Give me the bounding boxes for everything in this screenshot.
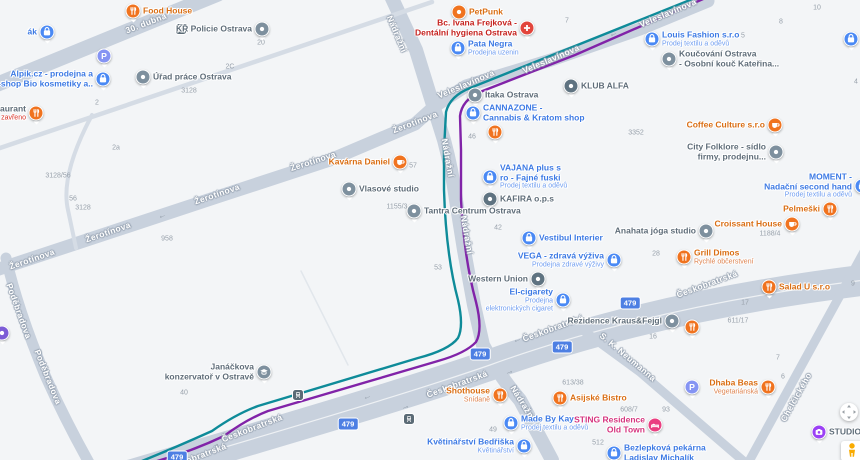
grill-dimos-subtitle: Rychlé občerstvení — [694, 258, 754, 266]
bezlepkova-pekarna-name: Ladislav Michalík — [624, 453, 706, 460]
address-number: 608/7 — [620, 407, 638, 414]
studio-g-name: STUDIO G — [829, 427, 860, 437]
frejkova-dentalni-hygiena-icon[interactable] — [520, 21, 535, 36]
kafira-icon[interactable] — [483, 192, 498, 207]
moment-second-hand-subtitle: Prodej textilu a oděvů — [764, 192, 852, 200]
janackova-konzervator-name: konzervatoř v Ostravě — [165, 372, 254, 382]
food-icon-unlabeled-2-icon[interactable] — [685, 320, 700, 335]
route-479-badge: 479 — [621, 298, 640, 309]
address-number: 3128/56 — [45, 173, 70, 180]
vega-zdrava-vyziva-subtitle: Prodejna zdravé výživy — [518, 261, 604, 269]
address-number: 42 — [494, 225, 502, 232]
louis-fashion-subtitle: Prodej textilu a oděvů — [662, 40, 739, 48]
dhaba-beas-name: Dhaba Beas — [709, 378, 758, 388]
koucovani-ostrava-label[interactable]: Koučování Ostrava- Osobní kouč Kateřina.… — [679, 50, 779, 69]
vajana-plus-icon[interactable] — [483, 170, 498, 185]
address-number: 46 — [468, 134, 476, 141]
croissant-house-label[interactable]: Croissant House — [714, 219, 782, 229]
parking-south-icon[interactable]: P — [685, 380, 700, 395]
address-number: 20 — [257, 40, 265, 47]
address-number: 613/38 — [562, 380, 583, 387]
petpunk-label[interactable]: PetPunk — [469, 7, 503, 17]
road-ceskobratrska — [30, 278, 860, 460]
moment-second-hand-name: Nadační second hand — [764, 182, 852, 192]
vajana-plus-label[interactable]: VAJANA plus sro - Fajné fuskiProdej text… — [500, 164, 567, 191]
shothouse-icon[interactable] — [493, 388, 508, 403]
anahata-joga-label[interactable]: Anahata jóga studio — [615, 226, 696, 236]
road-parcel-line — [301, 271, 348, 365]
svg-text:P: P — [689, 382, 695, 392]
address-number: 16 — [649, 334, 657, 341]
pelmeski-name: Pelmeški — [783, 204, 820, 214]
address-number: 17 — [741, 300, 749, 307]
address-number: 1155/3 — [387, 204, 408, 211]
pata-negra-name: Pata Negra — [468, 39, 519, 49]
city-folklore-icon[interactable] — [769, 145, 784, 160]
coffee-culture-name: Coffee Culture s.r.o — [687, 120, 765, 130]
itaka-ostrava-label[interactable]: Itaka Ostrava — [485, 90, 538, 100]
svg-text:P: P — [101, 51, 107, 61]
address-number: 2 — [95, 100, 99, 107]
kavarna-daniel-name: Kavárna Daniel — [329, 157, 390, 167]
city-folklore-name: firmy, prodejnu... — [687, 152, 766, 162]
address-number: 53 — [434, 265, 442, 272]
vlasove-studio-name: Vlasové studio — [359, 184, 419, 194]
anahata-joga-name: Anahata jóga studio — [615, 226, 696, 236]
violet-edge-icon-icon[interactable] — [0, 326, 10, 341]
el-cigarety-label[interactable]: El-cigaretyProdejnaelektronických cigare… — [486, 287, 553, 313]
tram-stop-icon[interactable] — [404, 414, 414, 424]
address-number: 56 — [69, 196, 77, 203]
address-number: 9 — [851, 281, 855, 288]
salad-u-label[interactable]: Salad U s.r.o — [779, 282, 830, 292]
road-podebradova — [6, 258, 92, 460]
route-479-badge: 479 — [471, 349, 490, 360]
western-union-icon[interactable] — [531, 272, 546, 287]
frejkova-dentalni-hygiena-label[interactable]: Bc. Ivana Frejková -Dentální hygiena Ost… — [415, 19, 517, 38]
unknown-ak-label[interactable]: ák — [28, 27, 37, 37]
janackova-konzervator-icon[interactable] — [257, 365, 272, 380]
unknown-ak-name: ák — [28, 27, 37, 37]
coffee-culture-label[interactable]: Coffee Culture s.r.o — [687, 120, 765, 130]
vestibul-interier-label[interactable]: Vestibul Interier — [539, 233, 603, 243]
pata-negra-label[interactable]: Pata NegraProdejna uzenin — [468, 39, 519, 57]
route-479-badge: 479 — [339, 419, 358, 430]
made-by-kaya-li-icon[interactable] — [504, 416, 519, 431]
klub-alfa-label[interactable]: KLUB ALFA — [581, 81, 629, 91]
food-house-name: Food House — [143, 6, 192, 16]
asijske-bistro-icon[interactable] — [553, 391, 568, 406]
address-number: 611/17 — [728, 318, 749, 325]
el-cigarety-icon[interactable] — [556, 293, 571, 308]
kvetinarstvi-bedriska-icon[interactable] — [517, 439, 532, 454]
address-number: 2C — [226, 64, 235, 71]
kavarna-daniel-label[interactable]: Kavárna Daniel — [329, 157, 390, 167]
kr-policie-ostrava-icon[interactable] — [255, 22, 270, 37]
frejkova-dentalni-hygiena-name: Dentální hygiena Ostrava — [415, 28, 517, 38]
address-number: 10 — [813, 5, 821, 12]
address-number: 4 — [854, 79, 858, 86]
address-number: 5 — [741, 33, 745, 40]
pata-negra-icon[interactable] — [451, 41, 466, 56]
shothouse-label[interactable]: ShothouseSnídaně — [446, 386, 490, 404]
shothouse-name: Shothouse — [446, 386, 490, 396]
address-number: 1188/4 — [760, 231, 781, 238]
address-number: 3352 — [628, 130, 644, 137]
koucovani-ostrava-icon[interactable] — [662, 52, 677, 67]
address-number: 6 — [781, 374, 785, 381]
louis-fashion-label[interactable]: Louis Fashion s.r.oProdej textilu a oděv… — [662, 30, 739, 48]
map-canvas[interactable]: 30. dubnaVeleslavínovaVeleslavínovaVeles… — [0, 0, 860, 460]
urad-prace-ostrava-icon[interactable] — [136, 70, 151, 85]
anahata-joga-icon[interactable] — [699, 224, 714, 239]
cannazone-name: Cannabis & Kratom shop — [483, 113, 585, 123]
address-number: 8 — [779, 19, 783, 26]
restaurant-closed-icon[interactable] — [29, 106, 44, 121]
croissant-house-icon[interactable] — [785, 217, 800, 232]
grill-dimos-icon[interactable] — [677, 250, 692, 265]
urad-prace-ostrava-name: Úřad práce Ostrava — [153, 72, 231, 82]
asijske-bistro-label[interactable]: Asijské Bistro — [570, 393, 627, 403]
rezidence-kraus-fejgl-label[interactable]: Rezidence Kraus&Fejgl — [568, 316, 662, 326]
kafira-name: KAFIRA o.p.s — [500, 194, 554, 204]
kvetinarstvi-bedriska-label[interactable]: Květinářství BedřiškaKvětinářství — [427, 437, 514, 455]
itaka-ostrava-name: Itaka Ostrava — [485, 90, 538, 100]
shop-icon-right-edge-icon[interactable] — [844, 32, 859, 47]
el-cigarety-subtitle: Prodejna — [486, 297, 553, 305]
croissant-house-name: Croissant House — [714, 219, 782, 229]
route-479-badge: 479 — [553, 342, 572, 353]
koucovani-ostrava-name: - Osobní kouč Kateřina... — [679, 59, 779, 69]
asijske-bistro-name: Asijské Bistro — [570, 393, 627, 403]
parking-north-icon[interactable]: P — [97, 49, 112, 64]
vega-zdrava-vyziva-icon[interactable] — [607, 253, 622, 268]
louis-fashion-icon[interactable] — [645, 32, 660, 47]
kr-policie-ostrava-label[interactable]: KŘ Policie Ostrava — [176, 24, 252, 34]
vestibul-interier-icon[interactable] — [522, 231, 537, 246]
alpik-name: e-shop Bio kosmetiky a.. — [0, 79, 93, 89]
dhaba-beas-label[interactable]: Dhaba BeasVegetariánská — [709, 378, 758, 396]
kvetinarstvi-bedriska-name: Květinářství Bedřiška — [427, 437, 514, 447]
kafira-label[interactable]: KAFIRA o.p.s — [500, 194, 554, 204]
pan-control-icon[interactable] — [840, 403, 858, 421]
food-house-label[interactable]: Food House — [143, 6, 192, 16]
road-thin-street-west — [66, 115, 92, 248]
vega-zdrava-vyziva-name: VEGA - zdravá výživa — [518, 251, 604, 261]
address-number: 7 — [776, 355, 780, 362]
address-number: 93 — [662, 407, 670, 414]
sting-residence-icon[interactable] — [648, 418, 663, 433]
address-number: 512 — [592, 440, 604, 447]
rezidence-kraus-fejgl-icon[interactable] — [665, 314, 680, 329]
address-number: 3128 — [75, 205, 91, 212]
shothouse-subtitle: Snídaně — [446, 396, 490, 404]
western-union-name: Western Union — [468, 274, 528, 284]
cannazone-label[interactable]: CANNAZONE -Cannabis & Kratom shop — [483, 104, 585, 123]
vajana-plus-name: ro - Fajné fuski — [500, 173, 567, 183]
alpik-label[interactable]: Alpik.cz - prodejna ae-shop Bio kosmetik… — [0, 70, 93, 89]
coffee-culture-icon[interactable] — [768, 118, 783, 133]
janackova-konzervator-label[interactable]: Janáčkovakonzervatoř v Ostravě — [165, 363, 254, 382]
pelmeski-label[interactable]: Pelmeški — [783, 204, 820, 214]
louis-fashion-name: Louis Fashion s.r.o — [662, 30, 739, 40]
salad-u-name: Salad U s.r.o — [779, 282, 830, 292]
unknown-ak-icon[interactable] — [40, 25, 55, 40]
food-icon-unlabeled-1-icon[interactable] — [488, 125, 503, 140]
bezlepkova-pekarna-icon[interactable] — [607, 446, 622, 460]
kr-policie-ostrava-name: KŘ Policie Ostrava — [176, 24, 252, 34]
city-folklore-label[interactable]: City Folklore - sídlofirmy, prodejnu... — [687, 143, 766, 162]
vestibul-interier-name: Vestibul Interier — [539, 233, 603, 243]
address-number: 49 — [489, 427, 497, 434]
salad-u-icon[interactable] — [762, 280, 777, 295]
vajana-plus-subtitle: Prodej textilu a oděvů — [500, 183, 567, 191]
address-number: 958 — [161, 236, 173, 243]
tantra-centrum-icon[interactable] — [407, 204, 422, 219]
el-cigarety-subtitle: elektronických cigaret — [486, 305, 553, 313]
vlasove-studio-label[interactable]: Vlasové studio — [359, 184, 419, 194]
vlasove-studio-icon[interactable] — [342, 182, 357, 197]
pelmeski-icon[interactable] — [823, 202, 838, 217]
tram-stop-icon[interactable] — [293, 390, 303, 400]
western-union-label[interactable]: Western Union — [468, 274, 528, 284]
sting-residence-label[interactable]: STING ResidenceOld Town — [574, 416, 645, 435]
klub-alfa-icon[interactable] — [564, 79, 579, 94]
address-number: 28 — [652, 251, 660, 258]
moment-second-hand-label[interactable]: MOMENT -Nadační second handProdej textil… — [764, 173, 852, 200]
address-number: 3128 — [181, 88, 197, 95]
rezidence-kraus-fejgl-name: Rezidence Kraus&Fejgl — [568, 316, 662, 326]
restaurant-closed-subtitle: dočasně zavřeno — [0, 114, 26, 122]
bezlepkova-pekarna-label[interactable]: Bezlepková pekárnaLadislav Michalík — [624, 444, 706, 460]
pegman-icon[interactable] — [841, 441, 860, 460]
petpunk-name: PetPunk — [469, 7, 503, 17]
dhaba-beas-subtitle: Vegetariánská — [709, 388, 758, 396]
kvetinarstvi-bedriska-subtitle: Květinářství — [427, 447, 514, 455]
tantra-centrum-name: Tantra Centrum Ostrava — [424, 206, 521, 216]
el-cigarety-name: El-cigarety — [486, 287, 553, 297]
tantra-centrum-label[interactable]: Tantra Centrum Ostrava — [424, 206, 521, 216]
address-number: 7 — [565, 18, 569, 25]
address-number: 2a — [112, 145, 120, 152]
sting-residence-name: Old Town — [574, 425, 645, 435]
studio-g-icon[interactable] — [812, 425, 827, 440]
vega-zdrava-vyziva-label[interactable]: VEGA - zdravá výživaProdejna zdravé výži… — [518, 251, 604, 269]
alpik-icon[interactable] — [96, 72, 111, 87]
grill-dimos-name: Grill Dimos — [694, 248, 754, 258]
pata-negra-subtitle: Prodejna uzenin — [468, 49, 519, 57]
klub-alfa-name: KLUB ALFA — [581, 81, 629, 91]
address-number: 40 — [180, 390, 188, 397]
food-house-icon[interactable] — [126, 4, 141, 19]
moment-second-hand-icon[interactable] — [855, 179, 860, 194]
grill-dimos-label[interactable]: Grill DimosRychlé občerstvení — [694, 248, 754, 266]
route-479-badge: 479 — [168, 452, 187, 460]
address-number: 57 — [409, 163, 417, 170]
urad-prace-ostrava-label[interactable]: Úřad práce Ostrava — [153, 72, 231, 82]
kavarna-daniel-icon[interactable] — [393, 155, 408, 170]
dhaba-beas-icon[interactable] — [761, 380, 776, 395]
itaka-ostrava-icon[interactable] — [468, 88, 483, 103]
restaurant-closed-label[interactable]: restaurantdočasně zavřeno — [0, 104, 26, 122]
studio-g-label[interactable]: STUDIO G — [829, 427, 860, 437]
cannazone-icon[interactable] — [466, 106, 481, 121]
restaurant-closed-name: restaurant — [0, 104, 26, 114]
